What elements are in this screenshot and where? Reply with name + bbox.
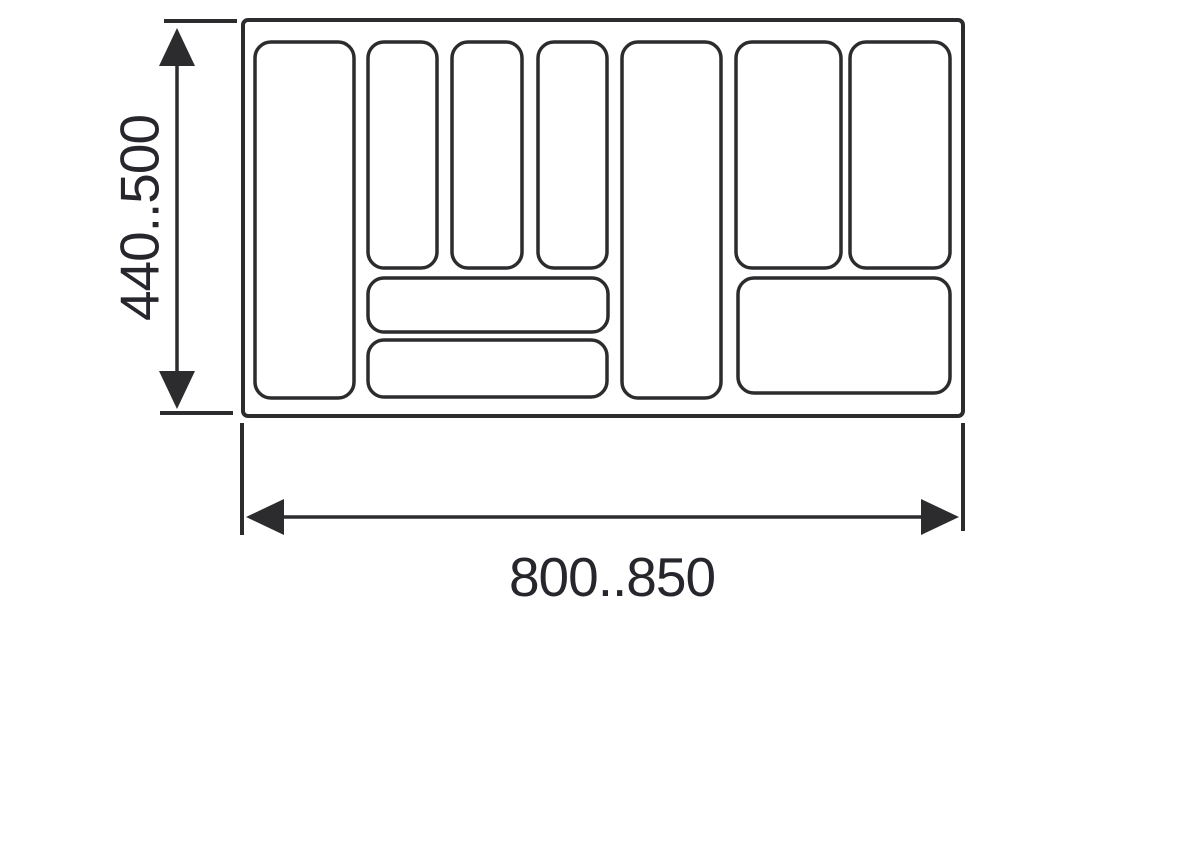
compartment-top-slot-3 [538, 42, 607, 268]
compartment-right-slot-2 [850, 42, 950, 268]
compartment-top-slot-2 [452, 42, 522, 268]
arrow-left-icon [246, 499, 284, 535]
tray-outline [243, 20, 963, 416]
width-dimension-label: 800..850 [509, 546, 715, 608]
height-dimension: 440..500 [109, 21, 237, 413]
arrow-down-icon [159, 371, 195, 409]
width-dimension: 800..850 [242, 423, 963, 608]
cutlery-tray-diagram: 440..500 800..850 [0, 0, 1200, 850]
height-dimension-label: 440..500 [109, 115, 171, 321]
compartment-center-tall [622, 42, 721, 398]
compartment-shallow-wide-2 [368, 340, 607, 397]
compartment-top-slot-1 [368, 42, 437, 268]
compartment-left-tall [255, 42, 354, 398]
arrow-right-icon [921, 499, 959, 535]
compartment-right-wide [738, 278, 950, 393]
compartment-shallow-wide-1 [368, 278, 608, 332]
tray [243, 20, 963, 416]
diagram-canvas: 440..500 800..850 [0, 0, 1200, 850]
arrow-up-icon [159, 28, 195, 66]
compartment-right-slot-1 [736, 42, 841, 268]
